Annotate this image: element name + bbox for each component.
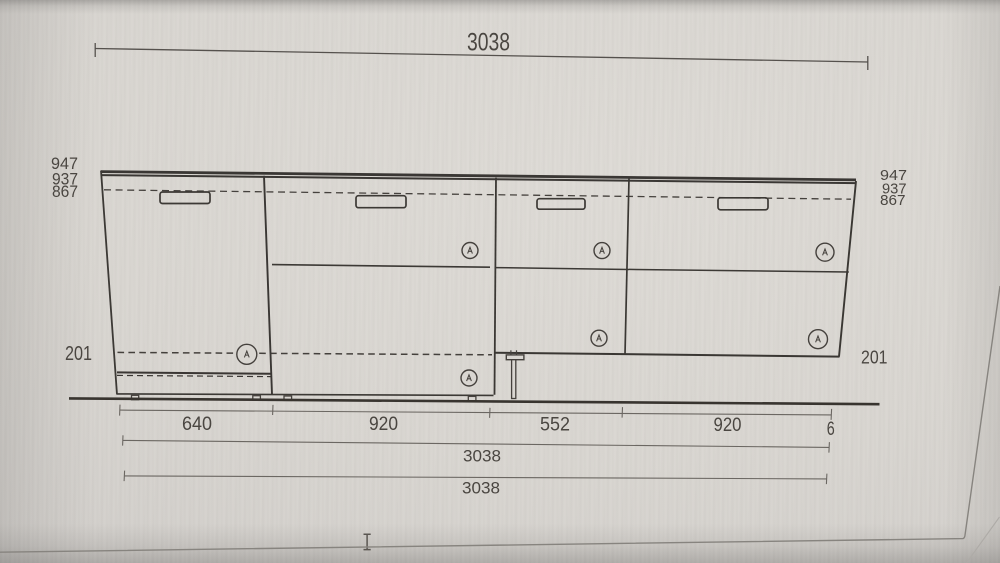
svg-text:640: 640 [182,414,212,435]
svg-text:201: 201 [861,347,888,367]
svg-text:867: 867 [880,193,906,209]
svg-text:867: 867 [52,182,78,201]
svg-text:920: 920 [714,415,742,436]
svg-text:552: 552 [540,415,570,436]
svg-text:3038: 3038 [462,479,500,498]
svg-text:920: 920 [369,414,398,435]
svg-text:6: 6 [827,419,835,440]
svg-text:201: 201 [65,343,92,365]
svg-text:3038: 3038 [463,447,501,466]
svg-text:3038: 3038 [467,28,510,56]
